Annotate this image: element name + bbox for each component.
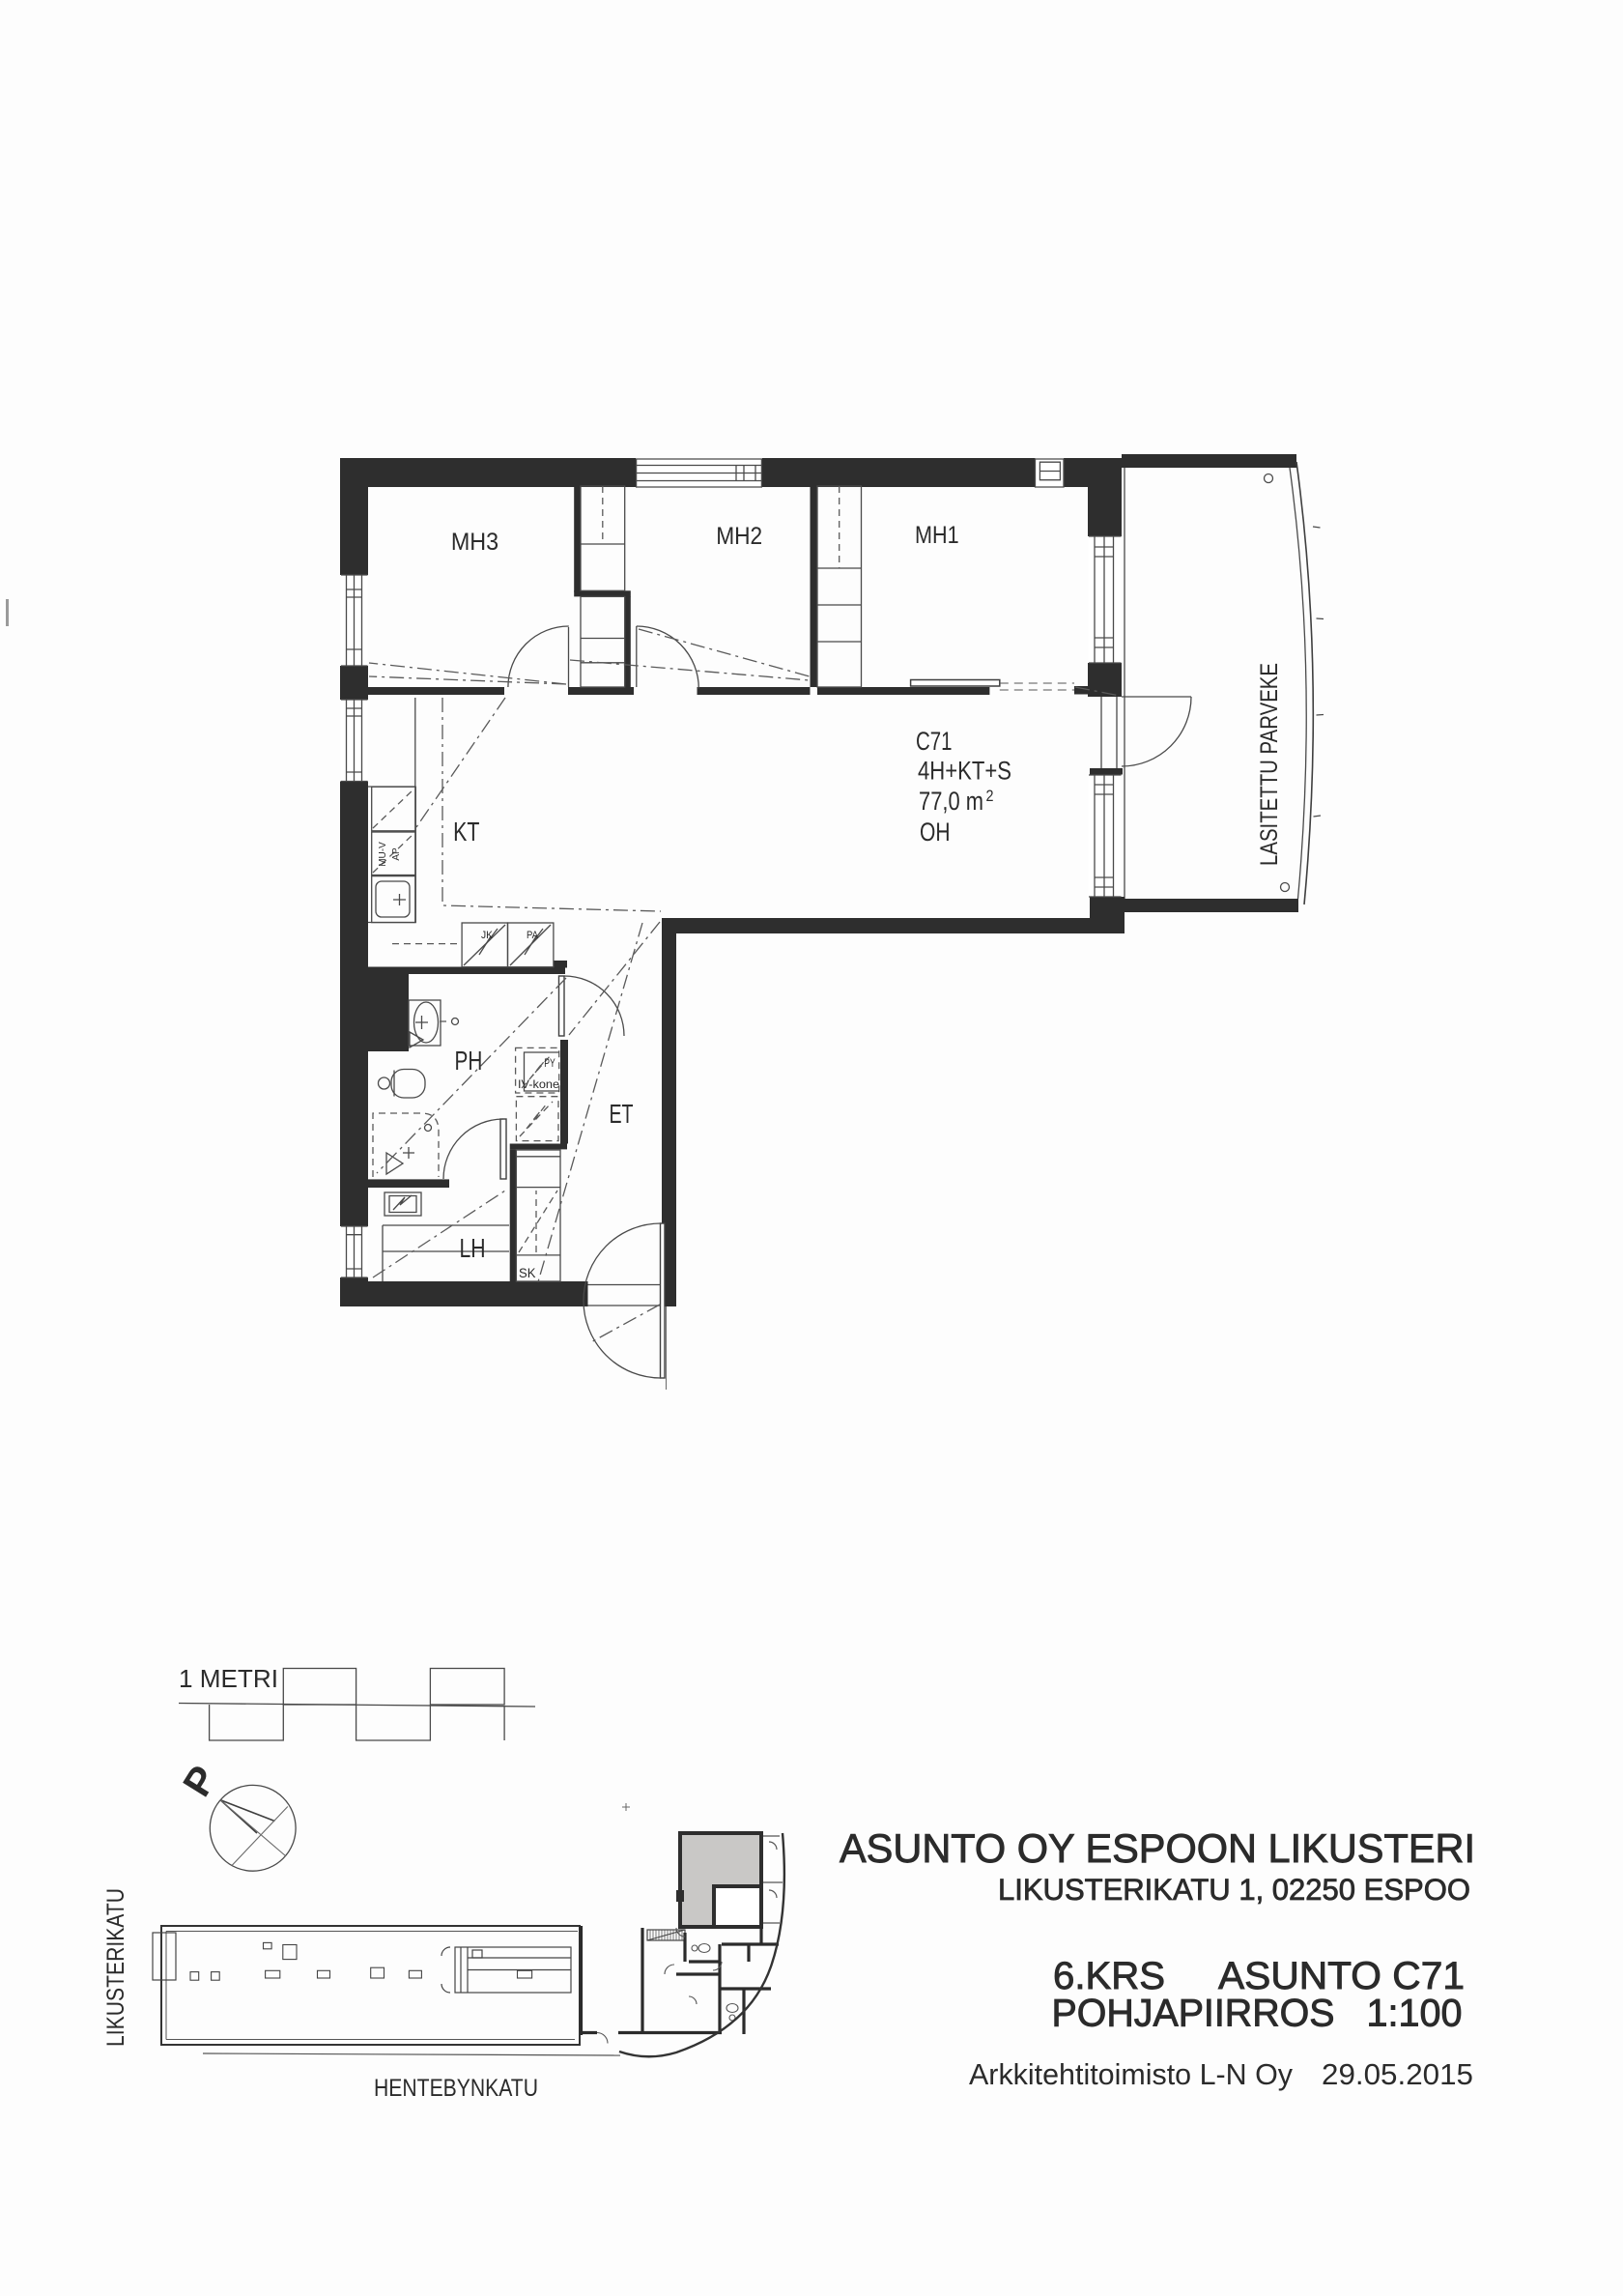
svg-text:PY: PY xyxy=(544,1056,555,1070)
svg-text:LIKUSTERIKATU: LIKUSTERIKATU xyxy=(102,1888,129,2047)
svg-text:PA: PA xyxy=(527,930,539,941)
svg-text:POHJAPIIRROS: POHJAPIIRROS xyxy=(1052,1993,1335,2035)
svg-text:MH2: MH2 xyxy=(716,523,762,550)
svg-text:MH3: MH3 xyxy=(451,529,498,556)
svg-text:LIKUSTERIKATU 1, 02250 ESPOO: LIKUSTERIKATU 1, 02250 ESPOO xyxy=(998,1872,1470,1907)
svg-text:MU-V: MU-V xyxy=(378,842,388,867)
svg-text:29.05.2015: 29.05.2015 xyxy=(1322,2057,1473,2091)
svg-text:MH1: MH1 xyxy=(915,522,959,549)
svg-text:1:100: 1:100 xyxy=(1367,1993,1463,2035)
svg-text:ET: ET xyxy=(609,1099,633,1129)
svg-text:77,0 m: 77,0 m xyxy=(919,787,983,816)
svg-text:LH: LH xyxy=(459,1233,485,1263)
svg-text:C71: C71 xyxy=(916,727,953,756)
svg-text:ASUNTO C71: ASUNTO C71 xyxy=(1218,1955,1465,1997)
svg-text:4H+KT+S: 4H+KT+S xyxy=(918,757,1011,786)
svg-text:HENTEBYNKATU: HENTEBYNKATU xyxy=(374,2075,538,2102)
svg-text:OH: OH xyxy=(920,818,951,847)
svg-text:SK: SK xyxy=(519,1265,536,1280)
svg-text:2: 2 xyxy=(986,787,994,805)
svg-text:JK: JK xyxy=(481,930,494,941)
svg-text:6.KRS: 6.KRS xyxy=(1053,1955,1165,1997)
svg-text:PH: PH xyxy=(455,1046,483,1076)
svg-text:KT: KT xyxy=(453,817,479,847)
svg-text:Arkkitehtitoimisto L-N Oy: Arkkitehtitoimisto L-N Oy xyxy=(969,2057,1293,2091)
svg-text:1 METRI: 1 METRI xyxy=(179,1664,278,1693)
svg-text:IV-kone: IV-kone xyxy=(518,1077,559,1091)
svg-text:AP: AP xyxy=(391,847,402,861)
svg-text:P: P xyxy=(174,1758,226,1804)
svg-text:LASITETTU PARVEKE: LASITETTU PARVEKE xyxy=(1256,663,1283,866)
svg-text:ASUNTO OY ESPOON LIKUSTERI: ASUNTO OY ESPOON LIKUSTERI xyxy=(840,1825,1475,1871)
